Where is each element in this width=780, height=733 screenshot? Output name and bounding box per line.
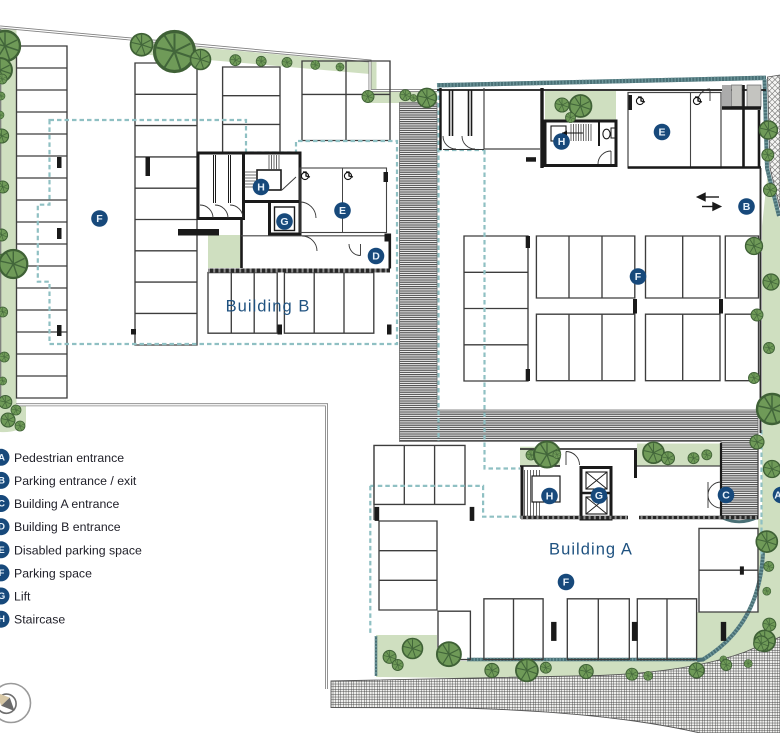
svg-text:F: F	[0, 568, 5, 579]
svg-text:Parking space: Parking space	[14, 566, 92, 580]
svg-text:H: H	[0, 614, 5, 625]
svg-text:Staircase: Staircase	[14, 613, 65, 627]
svg-text:G: G	[0, 591, 5, 602]
svg-text:E: E	[0, 545, 5, 556]
svg-text:A: A	[774, 490, 780, 502]
svg-text:E: E	[658, 127, 665, 139]
svg-text:Lift: Lift	[14, 590, 31, 604]
svg-text:B: B	[743, 201, 751, 213]
svg-text:Building A: Building A	[549, 541, 633, 559]
svg-text:C: C	[0, 499, 5, 510]
svg-text:Building A entrance: Building A entrance	[14, 497, 119, 511]
svg-text:G: G	[595, 490, 603, 502]
svg-text:D: D	[0, 522, 5, 533]
svg-text:F: F	[635, 271, 642, 283]
svg-text:A: A	[0, 452, 5, 463]
svg-text:E: E	[339, 205, 346, 217]
svg-text:F: F	[563, 577, 570, 589]
svg-text:Disabled parking space: Disabled parking space	[14, 543, 142, 557]
svg-text:D: D	[372, 251, 380, 263]
svg-text:Pedestrian entrance: Pedestrian entrance	[14, 451, 124, 465]
svg-text:H: H	[558, 136, 566, 148]
svg-text:F: F	[96, 213, 103, 225]
svg-text:B: B	[0, 475, 5, 486]
svg-text:Building B entrance: Building B entrance	[14, 520, 121, 534]
svg-text:G: G	[280, 216, 288, 228]
svg-text:Parking entrance / exit: Parking entrance / exit	[14, 474, 137, 488]
svg-text:H: H	[546, 491, 554, 503]
svg-text:H: H	[257, 182, 265, 194]
svg-text:Building B: Building B	[226, 298, 311, 316]
svg-text:C: C	[722, 490, 730, 502]
